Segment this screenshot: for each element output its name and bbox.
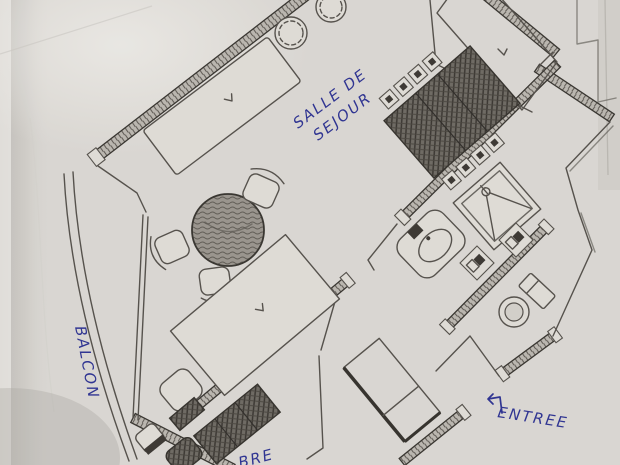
floor-plan-drawing: BALCON SALLE DE SEJOUR ENTREE BRE: [0, 0, 620, 465]
floor-plan-photo: BALCON SALLE DE SEJOUR ENTREE BRE: [0, 0, 620, 465]
photo-tone-overlay: [0, 0, 620, 465]
